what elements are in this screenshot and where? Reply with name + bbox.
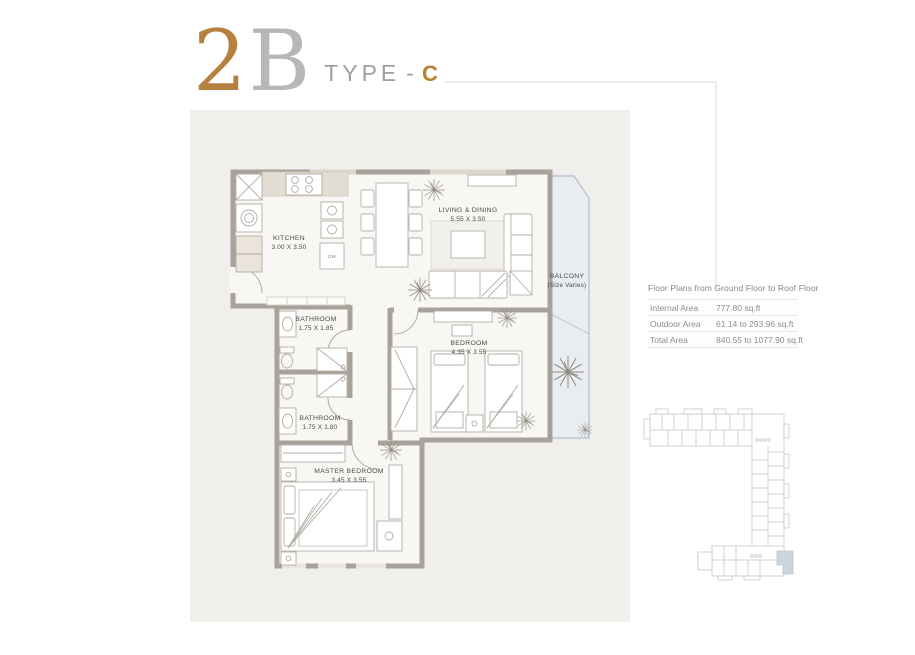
living-dining-label: LIVING & DINING xyxy=(439,207,498,214)
master-bedroom-dims: 3.45 X 3.55 xyxy=(332,477,367,484)
living-dining-dims: 5.55 X 3.50 xyxy=(451,216,486,223)
title-number: 2 xyxy=(193,23,246,100)
table-row: Internal Area 777.80 sq.ft xyxy=(648,299,798,315)
bathroom1-dims: 1.75 X 1.85 xyxy=(299,325,334,332)
bathroom1-label: BATHROOM xyxy=(295,316,336,323)
page-title: 2 B TYPE - C xyxy=(193,18,439,100)
area-row-label: Total Area xyxy=(650,335,716,345)
area-row-label: Outdoor Area xyxy=(650,319,716,329)
key-plan xyxy=(644,409,793,580)
title-dash: - xyxy=(406,60,414,100)
master-bedroom-label: MASTER BEDROOM xyxy=(314,468,384,475)
balcony-label: BALCONY xyxy=(550,273,585,280)
area-row-value: 840.55 to 1077.90 sq.ft xyxy=(716,335,803,345)
area-row-value: 777.80 sq.ft xyxy=(716,303,760,313)
table-row: Total Area 840.55 to 1077.90 sq.ft xyxy=(648,331,798,348)
kitchen-dims: 3.00 X 3.50 xyxy=(272,244,307,251)
bedroom-dims: 4.35 X 3.55 xyxy=(452,349,487,356)
bathroom2-dims: 1.75 X 1.80 xyxy=(303,424,338,431)
dining-furniture xyxy=(361,183,422,267)
title-type-code: C xyxy=(422,61,439,100)
dishwasher-label: DW xyxy=(328,254,336,259)
bedroom-label: BEDROOM xyxy=(450,340,487,347)
area-row-value: 61.14 to 293.96 sq.ft xyxy=(716,319,794,329)
balcony-dims: (Size Varies) xyxy=(548,282,587,289)
title-type-label: TYPE xyxy=(324,60,400,100)
title-letter: B xyxy=(248,23,310,100)
area-table: Floor Plans from Ground Floor to Roof Fl… xyxy=(648,283,798,348)
area-row-label: Internal Area xyxy=(650,303,716,313)
area-table-header: Floor Plans from Ground Floor to Roof Fl… xyxy=(648,283,798,293)
bathroom2-label: BATHROOM xyxy=(299,415,340,422)
balcony-area xyxy=(551,174,589,440)
table-row: Outdoor Area 61.14 to 293.96 sq.ft xyxy=(648,315,798,331)
kitchen-label: KITCHEN xyxy=(273,235,305,242)
